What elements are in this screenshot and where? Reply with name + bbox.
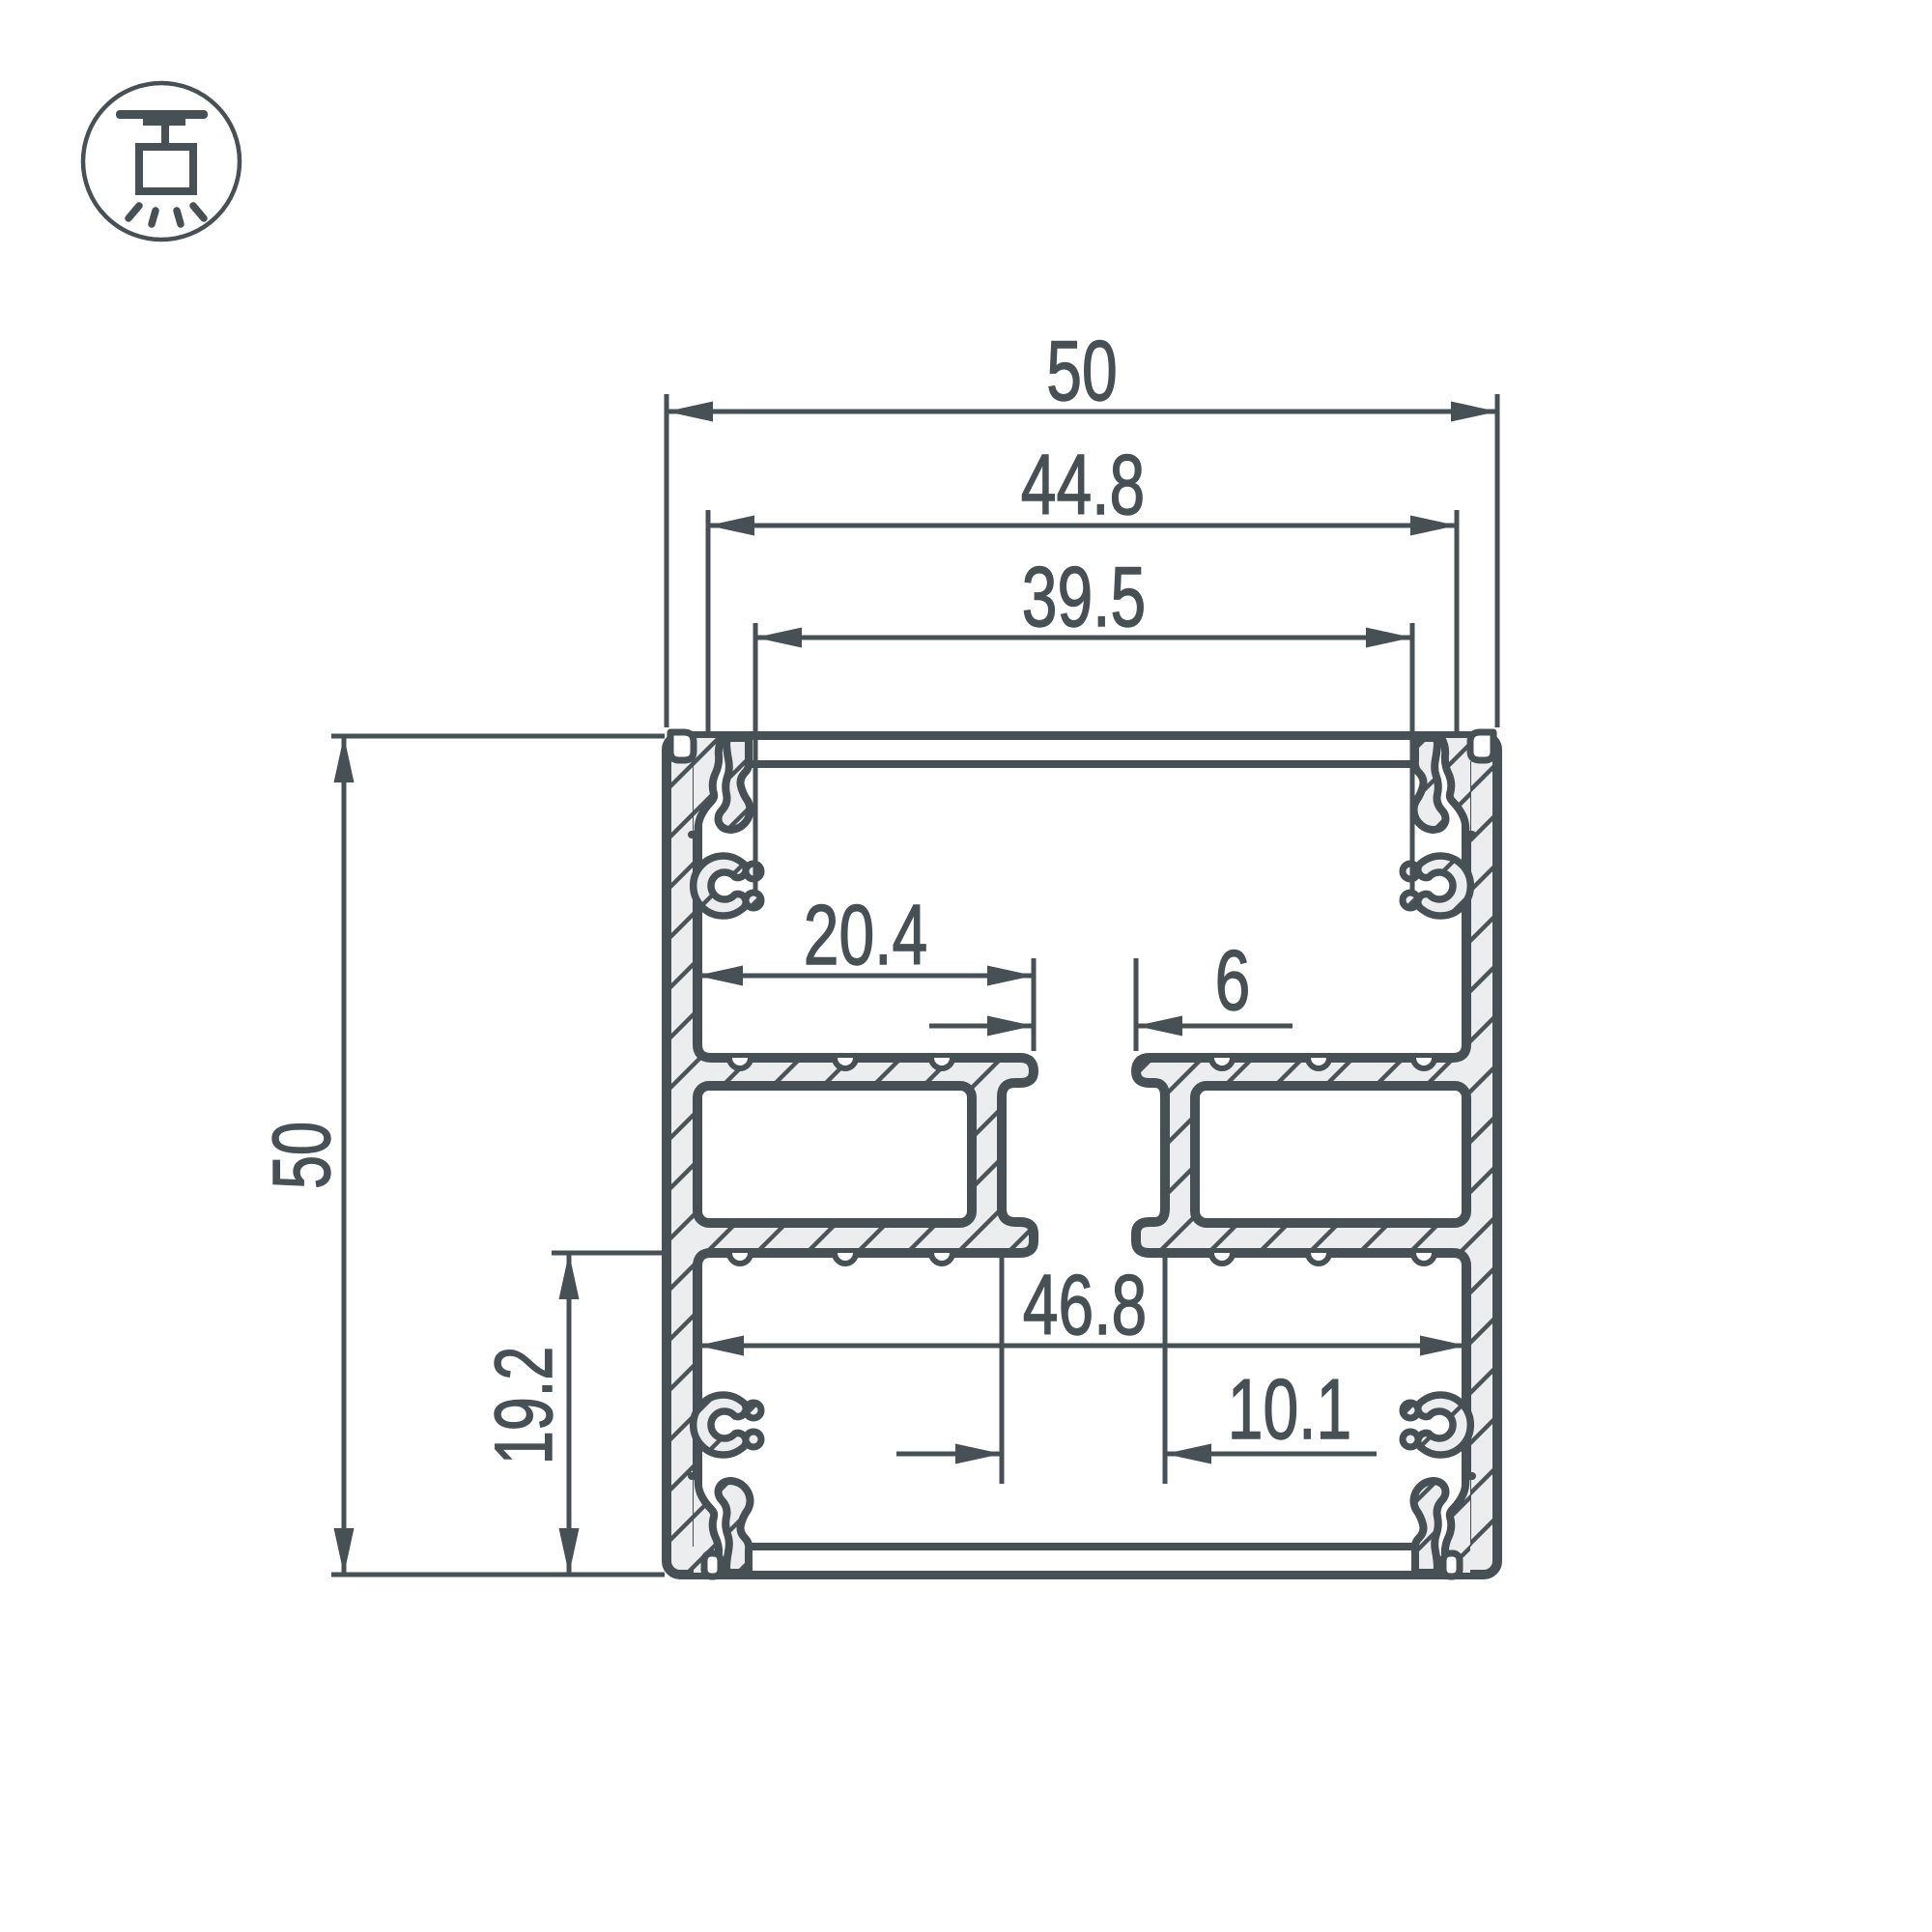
svg-text:44.8: 44.8 (1021, 439, 1145, 532)
svg-text:19.2: 19.2 (478, 1347, 569, 1465)
svg-text:50: 50 (256, 1122, 347, 1189)
svg-text:46.8: 46.8 (1023, 1259, 1147, 1352)
svg-text:20.4: 20.4 (804, 889, 927, 982)
svg-text:50: 50 (1046, 325, 1117, 418)
svg-text:10.1: 10.1 (1228, 1363, 1351, 1457)
svg-text:6: 6 (1215, 934, 1251, 1028)
svg-text:39.5: 39.5 (1022, 551, 1146, 644)
